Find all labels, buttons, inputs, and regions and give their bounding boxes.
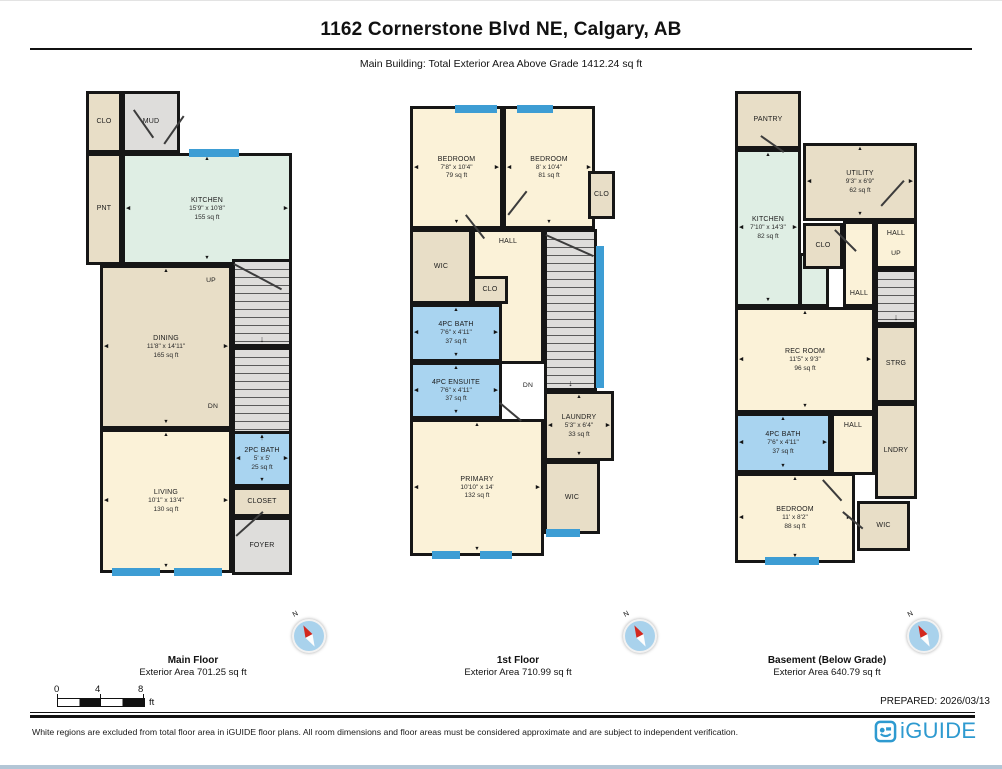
floor-area: Exterior Area 701.25 sq ft [83, 667, 303, 678]
scale-bar-segments [57, 698, 145, 707]
room-up-label: UP [885, 249, 907, 260]
dimension-marker: ▼ [453, 353, 458, 359]
dimension-marker: ▲ [259, 435, 264, 441]
dimension-marker: ▼ [259, 478, 264, 484]
dimension-marker: ▶ [494, 330, 498, 336]
room-dn-label: DN [516, 380, 540, 392]
dimension-marker: ▲ [792, 477, 797, 483]
dimension-marker: ▲ [204, 157, 209, 163]
prepared-date: PREPARED: 2026/03/13 [690, 696, 990, 707]
window [480, 551, 512, 559]
compass-icon: N [292, 619, 326, 653]
dimension-marker: ▶ [284, 456, 288, 462]
dimension-marker: ▼ [802, 404, 807, 410]
dimension-marker: ◀ [104, 498, 108, 504]
dimension-marker: ◀ [507, 165, 511, 171]
dimension-marker: ▼ [163, 564, 168, 570]
dimension-marker: ▲ [453, 366, 458, 372]
dimension-marker: ▶ [606, 423, 610, 429]
floorplan-basement: PANTRYKITCHEN7'10" x 14'3"82 sq ft▲▼◀▶UT… [735, 91, 920, 591]
room-up-label: UP [198, 275, 224, 287]
dimension-marker: ▲ [857, 147, 862, 153]
room-strg: STRG [875, 325, 917, 403]
room-laundry: LAUNDRY5'3" x 6'4"33 sq ft▲▼◀▶ [544, 391, 614, 461]
bottom-edge [0, 765, 1002, 769]
floorplan-main-floor: CLOMUDPNTKITCHEN15'9" x 10'8"155 sq ft▲▼… [86, 91, 298, 597]
floor-name: Main Floor [83, 655, 303, 666]
window [517, 105, 553, 113]
compass-needle-tail [636, 634, 649, 648]
room-dn-label: DN [200, 401, 226, 413]
dimension-marker: ▶ [494, 388, 498, 394]
dimension-marker: ▶ [495, 165, 499, 171]
dimension-marker: ▶ [867, 357, 871, 363]
room-living: LIVING10'1" x 13'4"130 sq ft▲▼◀▶ [100, 429, 232, 573]
caption-main-floor: Main Floor Exterior Area 701.25 sq ft [83, 655, 303, 678]
window [189, 149, 239, 157]
room-wic-upper: WIC [410, 229, 472, 304]
room-mud: MUD [122, 91, 180, 153]
room-foyer: FOYER [232, 517, 292, 575]
compass-needle-tail [920, 634, 933, 648]
window [596, 246, 604, 388]
room-hall-center: HALL [843, 221, 875, 307]
dimension-marker: ▲ [163, 269, 168, 275]
room-bath-4pc: 4PC BATH7'6" x 4'11"37 sq ft▲▼◀▶ [735, 413, 831, 473]
compass-n-label: N [907, 610, 915, 619]
room-hall-lower: HALL [831, 413, 875, 475]
room-ensuite: 4PC ENSUITE7'6" x 4'11"37 sq ft▲▼◀▶ [410, 362, 502, 419]
dimension-marker: ◀ [414, 485, 418, 491]
window [432, 551, 460, 559]
dimension-marker: ◀ [548, 423, 552, 429]
floor-area: Exterior Area 640.79 sq ft [717, 667, 937, 678]
room-stairs: ↓ [875, 269, 917, 325]
room-primary: PRIMARY10'10" x 14'132 sq ft▲▼◀▶ [410, 419, 544, 556]
dimension-marker: ▲ [576, 395, 581, 401]
dimension-marker: ▼ [765, 298, 770, 304]
room-wic: WIC [857, 501, 910, 551]
room-pnt: PNT [86, 153, 122, 265]
dimension-marker: ◀ [739, 357, 743, 363]
dimension-marker: ▲ [765, 153, 770, 159]
scale-bar: 0 4 8 ft [50, 684, 170, 712]
iguide-logo-icon [874, 720, 897, 743]
dimension-marker: ▲ [474, 423, 479, 429]
compass-n-label: N [292, 610, 300, 619]
dimension-marker: ▼ [780, 464, 785, 470]
dimension-marker: ▶ [587, 165, 591, 171]
dimension-marker: ▼ [474, 547, 479, 553]
dimension-marker: ▶ [536, 485, 540, 491]
dimension-marker: ◀ [236, 456, 240, 462]
room-bedroom-1: BEDROOM7'8" x 10'4"79 sq ft▲▼◀▶ [410, 106, 503, 229]
dimension-marker: ◀ [414, 388, 418, 394]
room-bath-4pc: 4PC BATH7'6" x 4'11"37 sq ft▲▼◀▶ [410, 304, 502, 362]
window [112, 568, 160, 576]
compass-needle-tail [305, 634, 318, 648]
dimension-marker: ▶ [823, 440, 827, 446]
floorplan-1st-floor: BEDROOM7'8" x 10'4"79 sq ft▲▼◀▶BEDROOM8'… [410, 106, 615, 566]
dimension-marker: ▶ [224, 344, 228, 350]
room-bath-2pc: 2PC BATH5' x 5'25 sq ft▲▼◀▶ [232, 431, 292, 487]
room-clo-small: CLO [472, 276, 508, 304]
dimension-marker: ▼ [576, 452, 581, 458]
dimension-marker: ▲ [802, 311, 807, 317]
room-bedroom: BEDROOM11' x 8'2"88 sq ft▲▼◀▶ [735, 473, 855, 563]
page-subtitle: Main Building: Total Exterior Area Above… [0, 58, 1002, 70]
compass-n-label: N [623, 610, 631, 619]
dimension-marker: ▼ [546, 220, 551, 226]
room-clo: CLO [86, 91, 122, 153]
stair-direction-arrow: ↓ [568, 378, 573, 388]
floorplan-page: 1162 Cornerstone Blvd NE, Calgary, AB Ma… [0, 0, 1002, 769]
window [765, 557, 819, 565]
iguide-logo: iGUIDE [874, 718, 976, 744]
dimension-marker: ▼ [453, 410, 458, 416]
dimension-marker: ▶ [284, 206, 288, 212]
caption-1st-floor: 1st Floor Exterior Area 710.99 sq ft [408, 655, 628, 678]
iguide-logo-text: iGUIDE [900, 718, 976, 744]
dimension-marker: ▼ [163, 420, 168, 426]
dimension-marker: ▶ [909, 179, 913, 185]
dimension-marker: ▼ [454, 220, 459, 226]
window [455, 105, 497, 113]
stair-direction-arrow: ↓ [894, 312, 899, 322]
room-bedroom-2: BEDROOM8' x 10'4"81 sq ft▲▼◀▶ [503, 106, 595, 229]
compass-icon: N [907, 619, 941, 653]
floor-name: Basement (Below Grade) [717, 655, 937, 666]
dimension-marker: ◀ [126, 206, 130, 212]
dimension-marker: ◀ [739, 440, 743, 446]
room-hall-upper: HALL [875, 221, 917, 269]
dimension-marker: ◀ [104, 344, 108, 350]
room-lndry: LNDRY [875, 403, 917, 499]
footer-divider [30, 712, 975, 718]
page-title: 1162 Cornerstone Blvd NE, Calgary, AB [0, 19, 1002, 41]
dimension-marker: ▶ [224, 498, 228, 504]
window [546, 529, 580, 537]
room-stairs-up: ↓ [232, 259, 292, 347]
room-clo-right: CLO [588, 171, 615, 219]
dimension-marker: ▼ [857, 212, 862, 218]
scale-unit: ft [149, 697, 154, 708]
window [174, 568, 222, 576]
title-divider [30, 48, 972, 50]
dimension-marker: ▲ [780, 417, 785, 423]
compass-icon: N [623, 619, 657, 653]
room-wic-lower: WIC [544, 461, 600, 534]
dimension-marker: ▲ [163, 433, 168, 439]
floor-name: 1st Floor [408, 655, 628, 666]
room-rec-room: REC ROOM11'5" x 9'3"96 sq ft▲▼◀▶ [735, 307, 875, 413]
caption-basement: Basement (Below Grade) Exterior Area 640… [717, 655, 937, 678]
dimension-marker: ▲ [453, 308, 458, 314]
dimension-marker: ◀ [414, 165, 418, 171]
dimension-marker: ▼ [204, 256, 209, 262]
room-kitchen: KITCHEN7'10" x 14'3"82 sq ft▲▼◀▶ [735, 149, 801, 307]
stair-direction-arrow: ↓ [260, 334, 265, 344]
dimension-marker: ▶ [793, 225, 797, 231]
dimension-marker: ◀ [807, 179, 811, 185]
floor-area: Exterior Area 710.99 sq ft [408, 667, 628, 678]
dimension-marker: ◀ [739, 515, 743, 521]
disclaimer-text: White regions are excluded from total fl… [32, 727, 852, 737]
dimension-marker: ◀ [414, 330, 418, 336]
dimension-marker: ◀ [739, 225, 743, 231]
room-kitchen: KITCHEN15'9" x 10'8"155 sq ft▲▼◀▶ [122, 153, 292, 265]
